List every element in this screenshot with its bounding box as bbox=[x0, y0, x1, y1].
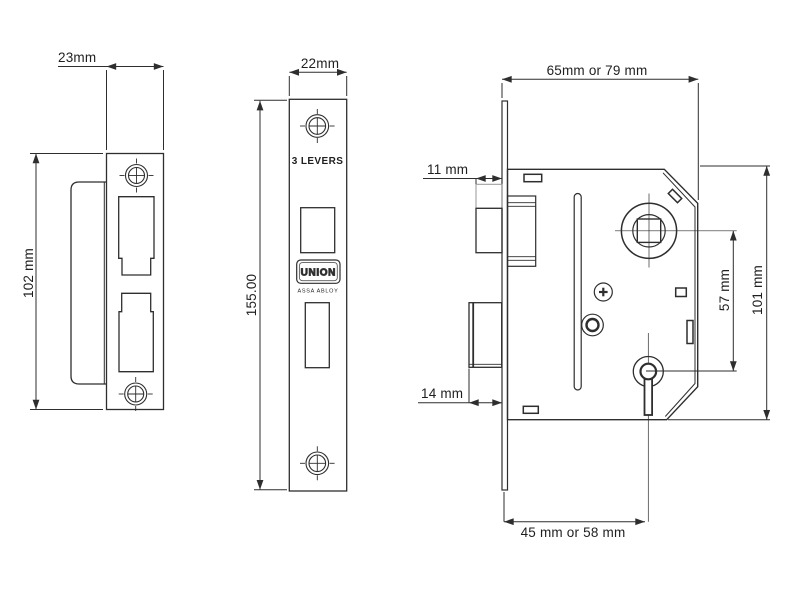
case-small-slot bbox=[676, 288, 687, 297]
keep-box-flange bbox=[71, 182, 107, 384]
keep-dimensions bbox=[30, 67, 164, 410]
case-height-label: 101 mm bbox=[750, 265, 765, 315]
keyhole-icon bbox=[633, 333, 663, 522]
case-tab-top bbox=[524, 174, 542, 181]
screw-hole-icon bbox=[300, 446, 335, 480]
bolt-depth-label: 14 mm bbox=[421, 386, 463, 401]
keep-height-label: 102 mm bbox=[21, 248, 36, 298]
forend-strip bbox=[502, 101, 508, 490]
case-inner-edge bbox=[663, 173, 695, 417]
brand-sub-label: ASSA ABLOY bbox=[298, 289, 339, 295]
latch-bolt-head bbox=[476, 208, 502, 252]
deadbolt-head bbox=[469, 303, 502, 368]
technical-drawing-canvas: 23mm 102 mm bbox=[0, 0, 800, 600]
case-ring-hole bbox=[582, 314, 604, 336]
keep-width-label: 23mm bbox=[58, 50, 96, 65]
case-slot bbox=[574, 194, 581, 391]
case-screw-icon bbox=[594, 283, 612, 301]
screw-hole-icon bbox=[120, 159, 154, 193]
screw-hole-icon bbox=[300, 109, 335, 143]
faceplate-width-label: 22mm bbox=[301, 56, 339, 71]
spindle-follower bbox=[615, 194, 737, 268]
case-side-slot bbox=[687, 321, 693, 344]
faceplate-height-label: 155.00 bbox=[244, 274, 259, 317]
screw-hole-icon bbox=[119, 377, 153, 411]
latch-spring-box bbox=[508, 196, 536, 266]
centres-label: 57 mm bbox=[717, 269, 732, 311]
lock-case-view bbox=[469, 101, 737, 522]
latch-depth-label: 11 mm bbox=[427, 162, 468, 177]
keep-view bbox=[71, 154, 164, 412]
keep-deadbolt-cutout bbox=[119, 293, 153, 371]
faceplate-latch-cutout bbox=[301, 208, 335, 253]
lock-drawing-svg: 23mm 102 mm bbox=[0, 0, 800, 600]
latch-bolt-bevel bbox=[476, 184, 502, 208]
keep-latch-cutout bbox=[119, 197, 154, 275]
faceplate-deadbolt-cutout bbox=[305, 303, 329, 368]
backset-label: 45 mm or 58 mm bbox=[521, 525, 626, 540]
levers-label: 3 LEVERS bbox=[292, 156, 344, 167]
case-tab-bottom bbox=[523, 406, 538, 413]
brand-label: UNION bbox=[301, 268, 336, 279]
case-width-label: 65mm or 79 mm bbox=[547, 63, 648, 78]
